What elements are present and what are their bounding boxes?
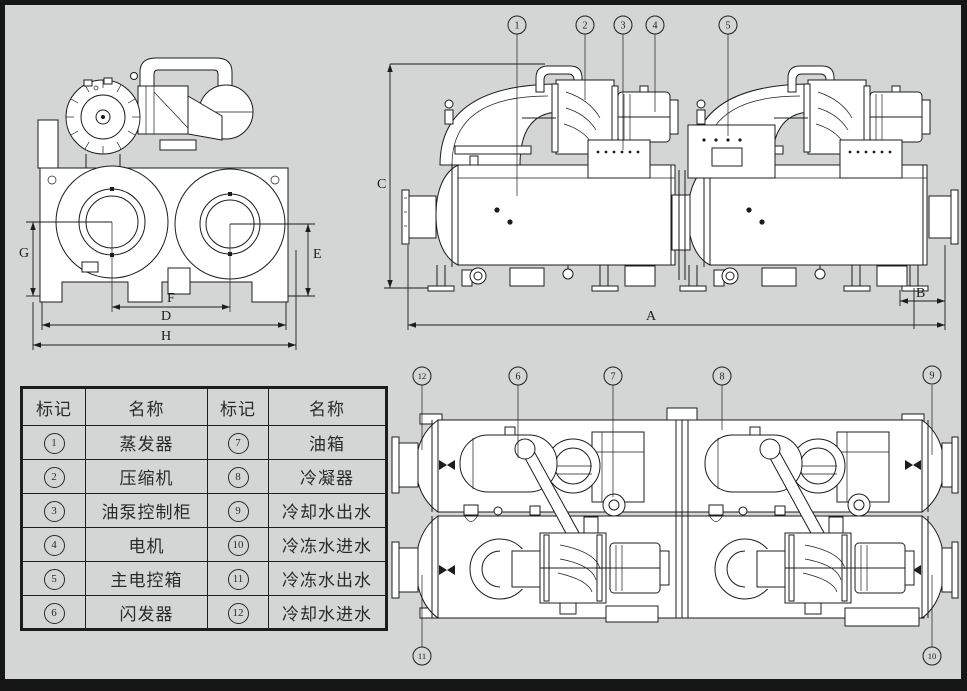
dim-B: B [916, 286, 925, 301]
name-cell: 闪发器 [86, 596, 208, 630]
side-elevation-view: C A B 1 2 [377, 16, 958, 330]
callout-8: 8 [713, 367, 731, 385]
callout-12: 12 [413, 367, 431, 385]
mark-cell: 2 [22, 460, 86, 494]
svg-text:9: 9 [930, 371, 935, 382]
name-cell: 主电控箱 [86, 562, 208, 596]
mark-badge: 2 [44, 467, 65, 488]
table-row: 2 压缩机 8 冷凝器 [22, 460, 387, 494]
dim-E: E [313, 247, 322, 262]
table-row: 3 油泵控制柜 9 冷却水出水 [22, 494, 387, 528]
front-view: G E F D H [19, 58, 322, 350]
table-row: 5 主电控箱 11 冷冻水出水 [22, 562, 387, 596]
dim-F: F [167, 291, 175, 306]
svg-text:1: 1 [515, 21, 520, 32]
header-name-right: 名称 [269, 388, 387, 426]
table-row: 1 蒸发器 7 油箱 [22, 426, 387, 460]
mark-cell: 8 [208, 460, 269, 494]
svg-text:4: 4 [653, 21, 658, 32]
dim-C: C [377, 177, 386, 192]
callout-11: 11 [413, 647, 431, 665]
control-box-top-view [845, 608, 919, 626]
dim-H: H [161, 329, 171, 344]
side-column [38, 120, 58, 168]
parts-table-header: 标记 名称 标记 名称 [22, 388, 387, 426]
drawing-sheet: G E F D H [0, 0, 967, 691]
callout-5: 5 [719, 16, 737, 34]
dim-G: G [19, 246, 29, 261]
callout-1: 1 [508, 16, 526, 34]
callout-2: 2 [576, 16, 594, 34]
name-cell: 冷却水进水 [269, 596, 387, 630]
mark-badge: 3 [44, 501, 65, 522]
header-name-left: 名称 [86, 388, 208, 426]
callout-9: 9 [923, 366, 941, 384]
mark-cell: 5 [22, 562, 86, 596]
table-row: 4 电机 10 冷冻水进水 [22, 528, 387, 562]
name-cell: 油箱 [269, 426, 387, 460]
mark-cell: 7 [208, 426, 269, 460]
callout-4: 4 [646, 16, 664, 34]
mark-badge: 8 [228, 467, 249, 488]
mark-badge: 10 [228, 535, 249, 556]
header-mark-left: 标记 [22, 388, 86, 426]
name-cell: 冷冻水进水 [269, 528, 387, 562]
mark-badge: 7 [228, 433, 249, 454]
callout-6: 6 [509, 367, 527, 385]
callout-7: 7 [604, 367, 622, 385]
cooling-water-outlet-nozzle [942, 437, 958, 493]
right-nozzle [929, 190, 958, 244]
svg-text:2: 2 [583, 21, 588, 32]
svg-text:10: 10 [928, 651, 937, 661]
mark-badge: 1 [44, 433, 65, 454]
left-nozzle [402, 190, 436, 244]
name-cell: 压缩机 [86, 460, 208, 494]
svg-text:3: 3 [621, 21, 626, 32]
mark-cell: 3 [22, 494, 86, 528]
chiller-module-1 [428, 66, 678, 291]
plan-view: 12 6 7 8 9 11 10 [392, 366, 958, 665]
main-control-box [688, 125, 775, 178]
name-cell: 冷冻水出水 [269, 562, 387, 596]
mark-cell: 12 [208, 596, 269, 630]
callout-3: 3 [614, 16, 632, 34]
dim-A: A [646, 309, 657, 324]
mark-badge: 4 [44, 535, 65, 556]
name-cell: 电机 [86, 528, 208, 562]
name-cell: 冷却水出水 [269, 494, 387, 528]
chilled-water-outlet-nozzle [392, 542, 418, 598]
svg-text:6: 6 [516, 372, 521, 383]
callout-10: 10 [923, 647, 941, 665]
name-cell: 冷凝器 [269, 460, 387, 494]
name-cell: 油泵控制柜 [86, 494, 208, 528]
compressor-scroll [66, 78, 140, 154]
top-elbow-pipe [140, 58, 232, 86]
mark-cell: 4 [22, 528, 86, 562]
mark-badge: 9 [228, 501, 249, 522]
svg-text:7: 7 [611, 372, 616, 383]
mark-badge: 12 [228, 603, 249, 624]
mark-badge: 6 [44, 603, 65, 624]
mark-cell: 10 [208, 528, 269, 562]
mark-cell: 1 [22, 426, 86, 460]
name-cell: 蒸发器 [86, 426, 208, 460]
svg-text:8: 8 [720, 372, 725, 383]
mark-cell: 11 [208, 562, 269, 596]
svg-text:12: 12 [418, 371, 427, 381]
cooling-water-inlet-nozzle [392, 437, 418, 493]
mark-cell: 6 [22, 596, 86, 630]
chilled-water-inlet-nozzle [942, 542, 958, 598]
table-row: 6 闪发器 12 冷却水进水 [22, 596, 387, 630]
parts-table: 标记 名称 标记 名称 1 蒸发器 7 油箱 2 压缩机 8 冷凝器 3 油泵控… [20, 386, 388, 631]
header-mark-right: 标记 [208, 388, 269, 426]
svg-text:5: 5 [726, 21, 731, 32]
mark-badge: 11 [228, 569, 249, 590]
duct [138, 86, 188, 134]
mark-cell: 9 [208, 494, 269, 528]
mark-badge: 5 [44, 569, 65, 590]
dim-D: D [161, 309, 171, 324]
svg-text:11: 11 [418, 651, 426, 661]
